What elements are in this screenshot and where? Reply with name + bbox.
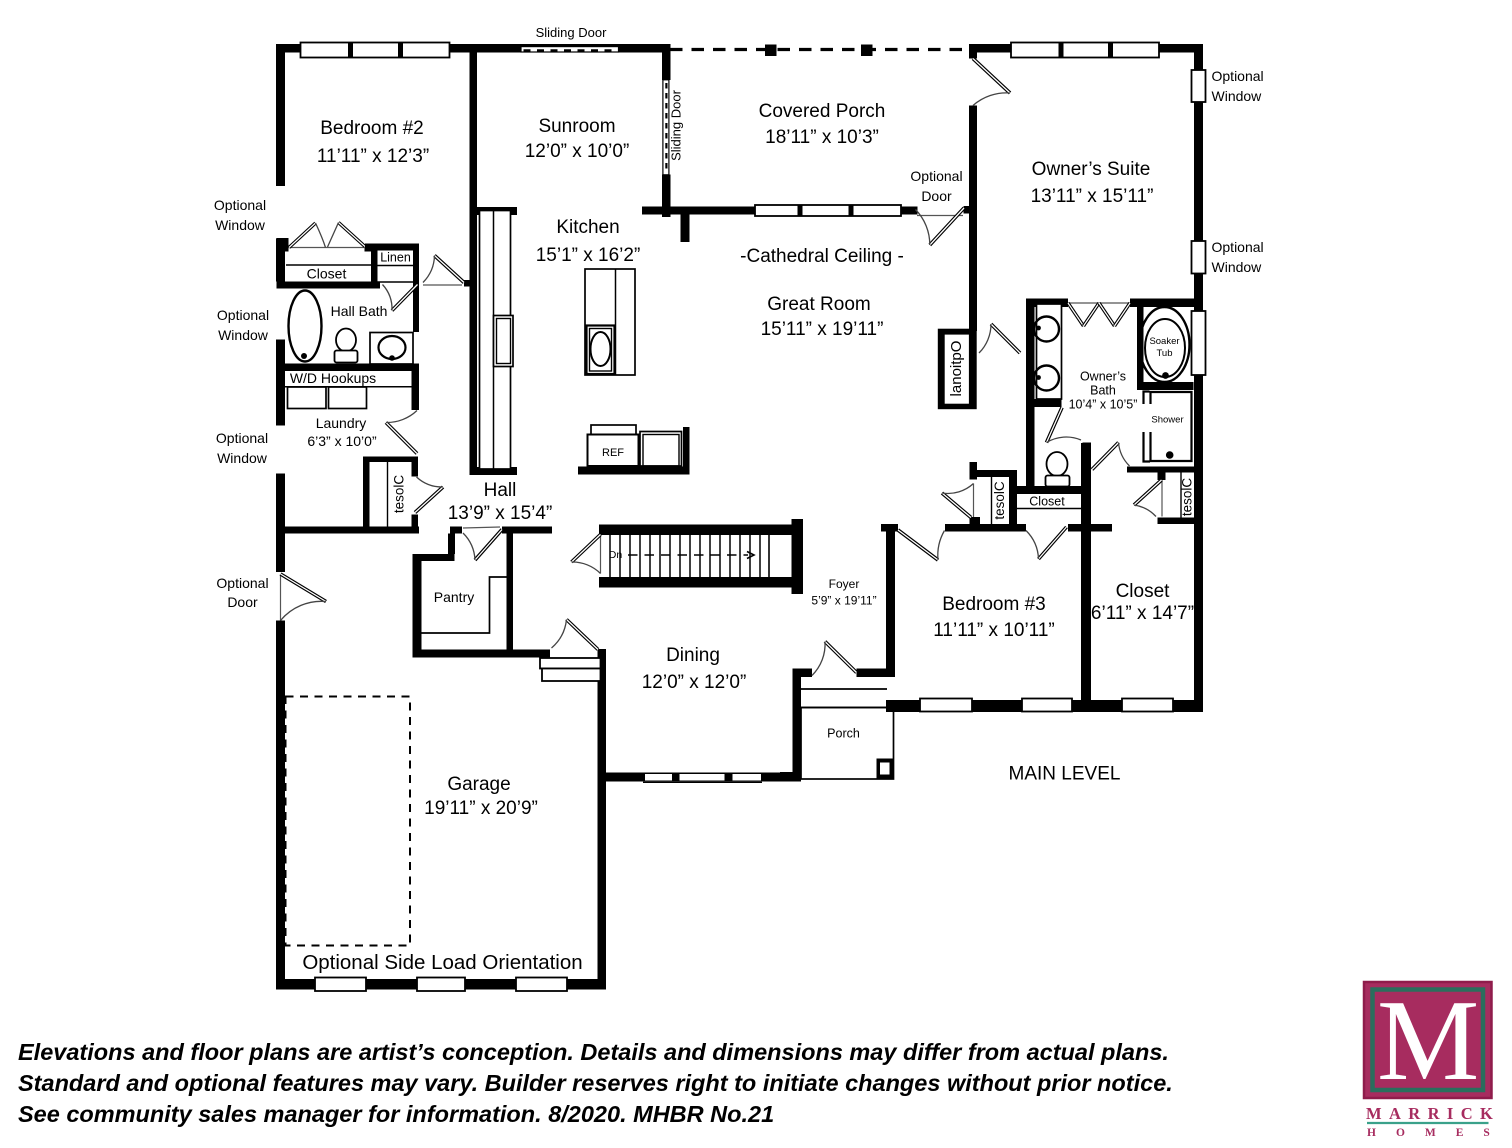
svg-text:12’0” x 12’0”: 12’0” x 12’0” (642, 672, 747, 693)
svg-text:Dining: Dining (666, 645, 720, 666)
svg-text:Shower: Shower (1151, 415, 1183, 426)
svg-text:11’11” x 10’11”: 11’11” x 10’11” (933, 620, 1054, 641)
svg-text:See community sales manager fo: See community sales manager for informat… (18, 1101, 774, 1127)
svg-text:11’11” x 12’3”: 11’11” x 12’3” (317, 146, 429, 167)
svg-text:Sunroom: Sunroom (538, 116, 615, 137)
svg-text:Optional: Optional (910, 168, 962, 184)
svg-text:18’11” x 10’3”: 18’11” x 10’3” (765, 127, 879, 148)
svg-text:MARRICK: MARRICK (1366, 1104, 1500, 1123)
svg-text:Optional: Optional (216, 430, 268, 446)
svg-text:MAIN LEVEL: MAIN LEVEL (1009, 764, 1121, 785)
svg-text:10’4” x 10’5”: 10’4” x 10’5” (1069, 398, 1138, 412)
svg-text:6’11” x 14’7”: 6’11” x 14’7” (1091, 603, 1194, 624)
svg-text:Closet: Closet (1029, 495, 1065, 509)
svg-text:Hall: Hall (484, 480, 517, 501)
svg-text:Elevations and floor plans are: Elevations and floor plans are artist’s … (18, 1039, 1169, 1065)
svg-text:tesolC: tesolC (992, 481, 1007, 520)
svg-text:Laundry: Laundry (316, 415, 367, 431)
svg-text:6’3” x 10’0”: 6’3” x 10’0” (307, 433, 377, 449)
svg-text:Linen: Linen (380, 251, 411, 265)
svg-text:Optional: Optional (214, 197, 266, 213)
svg-text:tesolC: tesolC (392, 475, 407, 514)
svg-text:Owner’s: Owner’s (1080, 370, 1126, 384)
svg-text:M: M (1377, 977, 1479, 1104)
svg-text:Optional: Optional (1212, 68, 1264, 84)
svg-text:Bedroom #3: Bedroom #3 (942, 594, 1046, 615)
svg-text:Optional: Optional (216, 575, 268, 591)
svg-text:Covered Porch: Covered Porch (759, 101, 886, 122)
svg-text:Optional: Optional (217, 307, 269, 323)
svg-text:Window: Window (215, 217, 266, 233)
svg-text:Door: Door (921, 188, 952, 204)
svg-text:Pantry: Pantry (434, 589, 474, 605)
svg-text:15’11” x 19’11”: 15’11” x 19’11” (761, 319, 884, 340)
svg-text:Sliding Door: Sliding Door (536, 25, 607, 40)
svg-text:Standard and optional features: Standard and optional features may vary.… (18, 1070, 1173, 1096)
svg-text:Tub: Tub (1156, 348, 1172, 359)
svg-text:tesolC: tesolC (1180, 478, 1195, 517)
svg-text:Window: Window (1212, 259, 1263, 275)
svg-text:Hall Bath: Hall Bath (331, 303, 388, 319)
svg-text:Sliding Door: Sliding Door (669, 89, 684, 160)
svg-text:W/D Hookups: W/D Hookups (290, 370, 376, 386)
svg-text:Owner’s Suite: Owner’s Suite (1032, 159, 1151, 180)
svg-text:HOMES: HOMES (1367, 1127, 1510, 1139)
svg-text:12’0” x 10’0”: 12’0” x 10’0” (525, 141, 630, 162)
svg-text:Window: Window (217, 450, 268, 466)
svg-text:Closet: Closet (1116, 581, 1171, 602)
svg-text:19’11” x 20’9”: 19’11” x 20’9” (424, 798, 538, 819)
svg-text:5’9” x 19’11”: 5’9” x 19’11” (811, 594, 876, 608)
svg-text:Window: Window (218, 327, 269, 343)
svg-text:Window: Window (1212, 88, 1263, 104)
svg-text:Optional Side Load Orientation: Optional Side Load Orientation (302, 951, 582, 974)
svg-text:Optional: Optional (1212, 239, 1264, 255)
svg-text:13’11” x 15’11”: 13’11” x 15’11” (1031, 186, 1154, 207)
svg-text:Bedroom #2: Bedroom #2 (320, 118, 424, 139)
svg-text:Garage: Garage (447, 774, 510, 795)
svg-text:Bath: Bath (1090, 384, 1116, 398)
svg-text:15’1” x 16’2”: 15’1” x 16’2” (536, 245, 641, 266)
svg-text:Great Room: Great Room (767, 294, 870, 315)
svg-text:lanoitpO: lanoitpO (948, 341, 965, 397)
svg-text:Dn: Dn (609, 549, 623, 561)
svg-text:-Cathedral Ceiling -: -Cathedral Ceiling - (740, 246, 904, 267)
svg-text:13’9” x 15’4”: 13’9” x 15’4” (448, 503, 553, 524)
svg-text:Closet: Closet (307, 266, 347, 282)
svg-text:Door: Door (227, 594, 258, 610)
svg-text:Soaker: Soaker (1149, 336, 1179, 347)
svg-text:REF: REF (602, 447, 624, 459)
svg-text:Porch: Porch (827, 727, 860, 741)
svg-text:Kitchen: Kitchen (556, 217, 619, 238)
svg-text:Foyer: Foyer (829, 577, 860, 591)
